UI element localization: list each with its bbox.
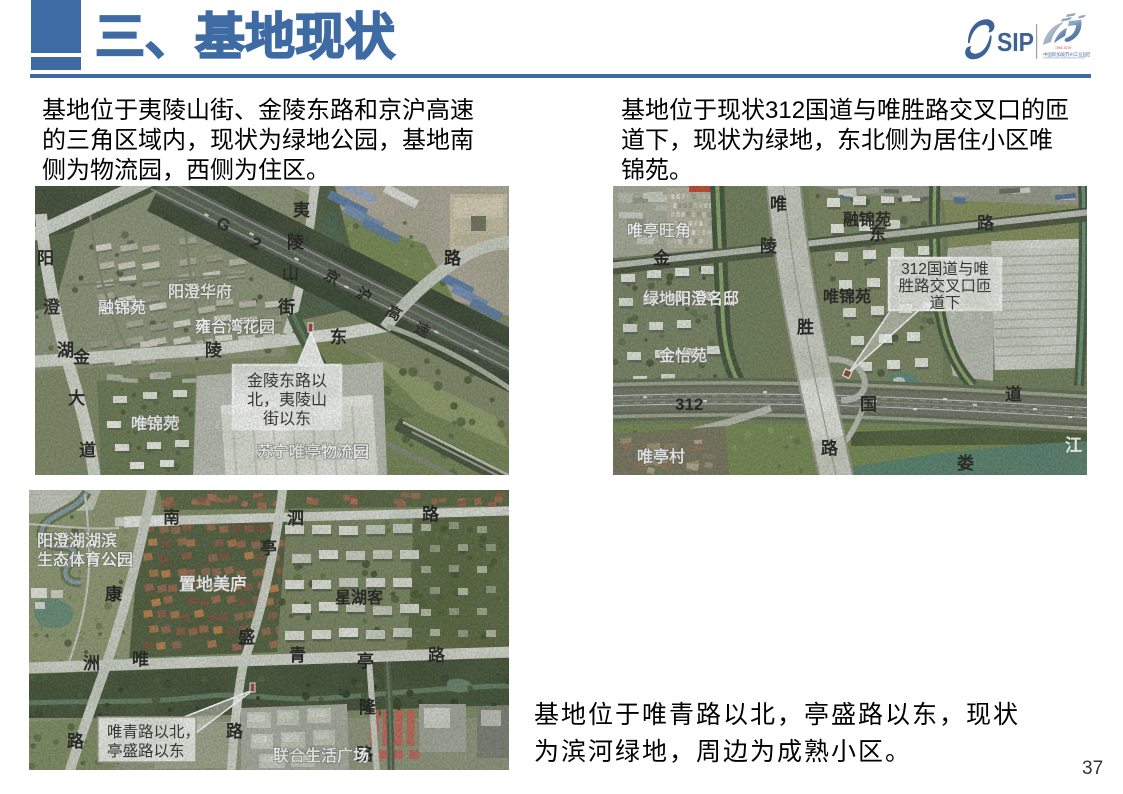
svg-text:1994 2019: 1994 2019 <box>1055 46 1071 50</box>
svg-text:SIP: SIP <box>997 27 1034 57</box>
svg-text:中国新加坡苏州工业园区: 中国新加坡苏州工业园区 <box>1043 51 1090 58</box>
